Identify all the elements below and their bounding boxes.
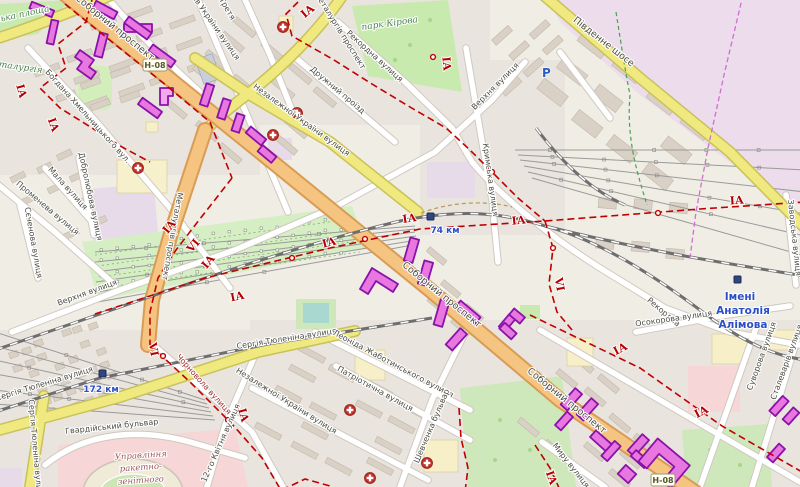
parking-icon: P (542, 66, 551, 80)
svg-text:Н-08: Н-08 (652, 476, 674, 485)
svg-text:Н-08: Н-08 (144, 61, 166, 70)
station-label: Алімова (719, 319, 768, 331)
station-label: Імені (725, 291, 755, 303)
map-svg: P Н-08 Н-08 Соборний проспект Соборний п… (0, 0, 800, 487)
route-label: ІА (511, 213, 526, 227)
hospital-icon (365, 473, 376, 484)
hospital-icon (278, 22, 289, 33)
hospital-icon (422, 458, 433, 469)
station-icon (734, 276, 741, 283)
route-label: ІА (729, 194, 744, 208)
station-icon (427, 213, 434, 220)
station-icon (99, 370, 106, 377)
hospital-icon (268, 130, 279, 141)
map-canvas[interactable]: P Н-08 Н-08 Соборний проспект Соборний п… (0, 0, 800, 487)
route-label: VI (146, 341, 161, 358)
route-label: ІА (402, 211, 418, 226)
hospital-icon (133, 163, 144, 174)
hospital-icon (345, 405, 356, 416)
route-shield: Н-08 (651, 474, 675, 486)
station-label: 172 км (83, 385, 118, 395)
route-label: ІА (439, 56, 453, 71)
station-label: Анатолія (716, 305, 770, 317)
route-label: VI (552, 276, 567, 293)
station-label: 74 км (430, 226, 459, 236)
